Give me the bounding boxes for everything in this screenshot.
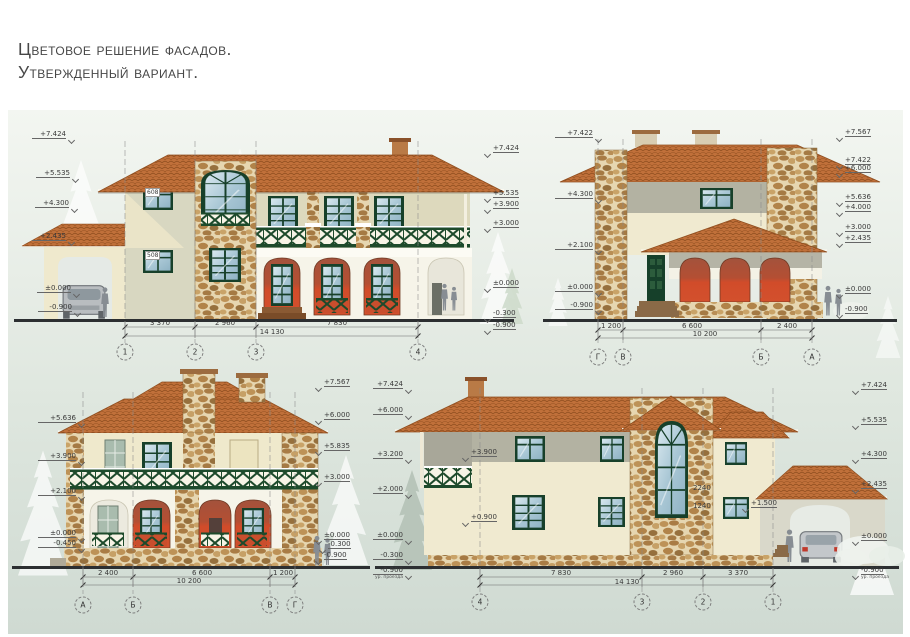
elevation-mark: +2.435 <box>32 232 66 241</box>
axis-bubble: 3 <box>634 594 651 611</box>
elevation-mark: +4.300 <box>35 199 69 208</box>
axis-bubble: Г <box>287 597 304 614</box>
elevation-mark: ±0.000 <box>373 531 403 540</box>
dimension-label: 2 960 <box>663 569 683 577</box>
sheet-title-line1: Цветовое решение фасадов. <box>18 38 232 61</box>
axis-bubble: 3 <box>248 344 265 361</box>
level-note: ур. проезда <box>861 575 889 580</box>
side-step <box>50 558 66 567</box>
axis-bubble: Б <box>753 349 770 366</box>
drawing-sheet: Цветовое решение фасадов. Утвержденный в… <box>0 0 910 637</box>
elevation-mark: +4.300 <box>555 190 593 199</box>
elevation-mark: ±0.000 <box>845 285 871 294</box>
window-tag: 608 <box>145 188 160 197</box>
window <box>598 497 625 527</box>
elevation-mark: +3.000 <box>493 219 519 228</box>
entrance-door <box>647 255 665 301</box>
dimension-label: 2 400 <box>777 322 797 330</box>
elevation-mark: +2.000 <box>373 485 403 494</box>
elevation-mark: -0.900 <box>38 303 72 312</box>
elevation-mark: +5.535 <box>861 416 887 425</box>
balcony-balustrade <box>70 468 318 490</box>
elevation-mark: ±0.000 <box>324 531 350 540</box>
elevation-mark: -0.300 <box>493 309 516 318</box>
elevation-mark: +5.835 <box>324 442 350 451</box>
elevation-mark: +5.535 <box>36 169 70 178</box>
dimension-label: 2 400 <box>98 569 118 577</box>
elevation-mark: +7.424 <box>32 130 66 139</box>
elevation-mark: +7.567 <box>324 378 350 387</box>
dimension-label: 1 200 <box>273 569 293 577</box>
elevation-mark: +6.000 <box>845 164 871 173</box>
facade-a-g-drawing <box>12 368 374 632</box>
window-tag: 508 <box>145 251 160 260</box>
main-walls <box>420 432 630 555</box>
arched-window <box>655 421 688 518</box>
facade-4-1-view: +7.424 +6.000 +3.200 +2.000 ±0.000 -0.30… <box>373 360 905 632</box>
elevation-mark: -0.900 <box>845 305 868 314</box>
dimension-label: 2240 <box>693 484 711 492</box>
axis-bubble: 4 <box>410 344 427 361</box>
dimension-label: 10 200 <box>177 577 202 585</box>
dimension-label: 14 130 <box>260 328 285 336</box>
dimension-label: 2 960 <box>215 319 235 327</box>
elevation-mark: +3.900 <box>471 448 497 457</box>
dimension-label: 7 830 <box>551 569 571 577</box>
dimension-label: 6 600 <box>682 322 702 330</box>
facade-4-1-drawing <box>373 360 905 632</box>
elevation-mark: -0.900 <box>555 301 593 310</box>
axis-bubble: Г <box>590 349 607 366</box>
elevation-mark: ±0.000 <box>861 532 887 541</box>
elevation-mark: +2.100 <box>555 241 593 250</box>
dimension-label: 7 830 <box>327 319 347 327</box>
elevation-mark: ±0.000 <box>37 284 71 293</box>
base-stone <box>64 548 322 567</box>
axis-bubble: А <box>804 349 821 366</box>
facade-g-a-view: +7.422 +4.300 +2.100 ±0.000 -0.900 +7.56… <box>535 115 905 370</box>
axis-bubble: 1 <box>765 594 782 611</box>
elevation-mark: +6.000 <box>324 411 350 420</box>
elevation-mark: ±0.000 <box>493 279 519 288</box>
window <box>600 436 624 462</box>
elevation-mark: +5.535 <box>493 189 519 198</box>
stone-stair-bay <box>195 161 256 320</box>
elevation-mark: -0.900 <box>373 566 403 575</box>
elevation-mark: +7.424 <box>493 144 519 153</box>
axis-bubble: Б <box>125 597 142 614</box>
person-silhouette <box>824 286 832 316</box>
entry-steps <box>635 301 679 317</box>
elevation-mark: +5.636 <box>38 414 76 423</box>
elevation-mark: +7.567 <box>845 128 871 137</box>
elevation-mark: ±0.000 <box>555 283 593 292</box>
axis-bubble: В <box>262 597 279 614</box>
elevation-mark: +7.422 <box>555 129 593 138</box>
elevation-mark: +3.900 <box>38 452 76 461</box>
elevation-mark: +3.000 <box>845 223 871 232</box>
dimension-label: 6 600 <box>192 569 212 577</box>
elevation-mark: +1.500 <box>751 499 777 508</box>
window <box>512 495 545 530</box>
dimension-label: 3 370 <box>150 319 170 327</box>
elevation-mark: +4.300 <box>861 450 887 459</box>
elevation-mark: -0.450 <box>38 539 76 548</box>
elevation-mark: +0.900 <box>471 513 497 522</box>
elevation-mark: +3.000 <box>324 473 350 482</box>
elevation-mark: -0.900 <box>861 566 884 575</box>
elevation-mark: -0.900 <box>324 551 347 560</box>
elevation-mark: +2.435 <box>861 480 887 489</box>
axis-bubble: А <box>75 597 92 614</box>
elevation-mark: +7.424 <box>373 380 403 389</box>
axis-bubble: 1 <box>117 344 134 361</box>
stone-stair-tower <box>622 396 721 555</box>
elevation-mark: -0.300 <box>328 540 351 549</box>
elevation-mark: -0.900 <box>493 321 516 330</box>
elevation-mark: +5.636 <box>845 193 871 202</box>
elevation-mark: +6.000 <box>373 406 403 415</box>
elevation-mark: -0.300 <box>373 551 403 560</box>
axis-bubble: 2 <box>695 594 712 611</box>
elevation-mark: +7.424 <box>861 381 887 390</box>
dimension-label: 14 130 <box>615 578 640 586</box>
elevation-mark: +2.100 <box>38 487 76 496</box>
level-note: ур. проезда <box>375 575 403 580</box>
dimension-label: 10 200 <box>693 330 718 338</box>
window <box>515 436 545 462</box>
dimension-label: 1 200 <box>601 322 621 330</box>
axis-bubble: 2 <box>187 344 204 361</box>
elevation-mark: +4.000 <box>845 203 871 212</box>
balcony-balustrade <box>256 223 470 248</box>
dimension-label: 3 370 <box>728 569 748 577</box>
sheet-title-line2: Утвержденный вариант. <box>18 61 232 84</box>
first-floor <box>84 490 282 548</box>
facade-a-g-view: +5.636 +3.900 +2.100 ±0.000 -0.450 +7.56… <box>12 368 374 632</box>
axis-bubble: 4 <box>472 594 489 611</box>
elevation-mark: ±0.000 <box>38 529 76 538</box>
drawing-panel: +7.424 +5.535 +4.300 +2.435 ±0.000 -0.90… <box>8 110 903 634</box>
window <box>725 442 747 465</box>
window <box>700 188 733 209</box>
facade-1-4-view: +7.424 +5.535 +4.300 +2.435 ±0.000 -0.90… <box>12 115 532 370</box>
dimension-label: 1240 <box>693 502 711 510</box>
elevation-mark: +2.435 <box>845 234 871 243</box>
elevation-mark: +3.900 <box>493 200 519 209</box>
sheet-title: Цветовое решение фасадов. Утвержденный в… <box>18 38 232 84</box>
axis-bubble: В <box>615 349 632 366</box>
chimneys <box>632 130 720 147</box>
elevation-mark: +3.200 <box>373 450 403 459</box>
